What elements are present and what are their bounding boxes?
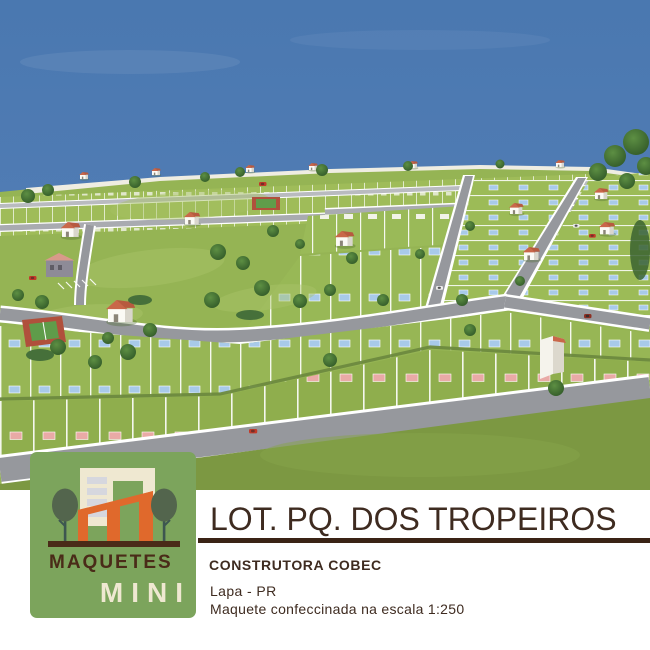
client-name: CONSTRUTORA COBEC <box>209 557 382 573</box>
maquette-photo <box>0 0 650 490</box>
sports-court-far <box>252 197 280 210</box>
scale-note: Maquete confeccinada na escala 1:250 <box>210 601 464 617</box>
logo-ground-bar <box>48 541 180 547</box>
brand-word-mini: MINI <box>100 577 191 609</box>
title-underline <box>198 538 650 543</box>
brand-word-maquetes: MAQUETES <box>49 552 181 574</box>
promo-poster: MAQUETES MINI LOT. PQ. DOS TROPEIROS CON… <box>0 0 650 650</box>
tree-icon-left <box>52 489 78 542</box>
logo-badge: MAQUETES MINI <box>30 452 196 618</box>
project-title: LOT. PQ. DOS TROPEIROS <box>210 502 640 536</box>
tree-icon-right <box>151 489 177 542</box>
project-location: Lapa - PR <box>210 583 277 599</box>
